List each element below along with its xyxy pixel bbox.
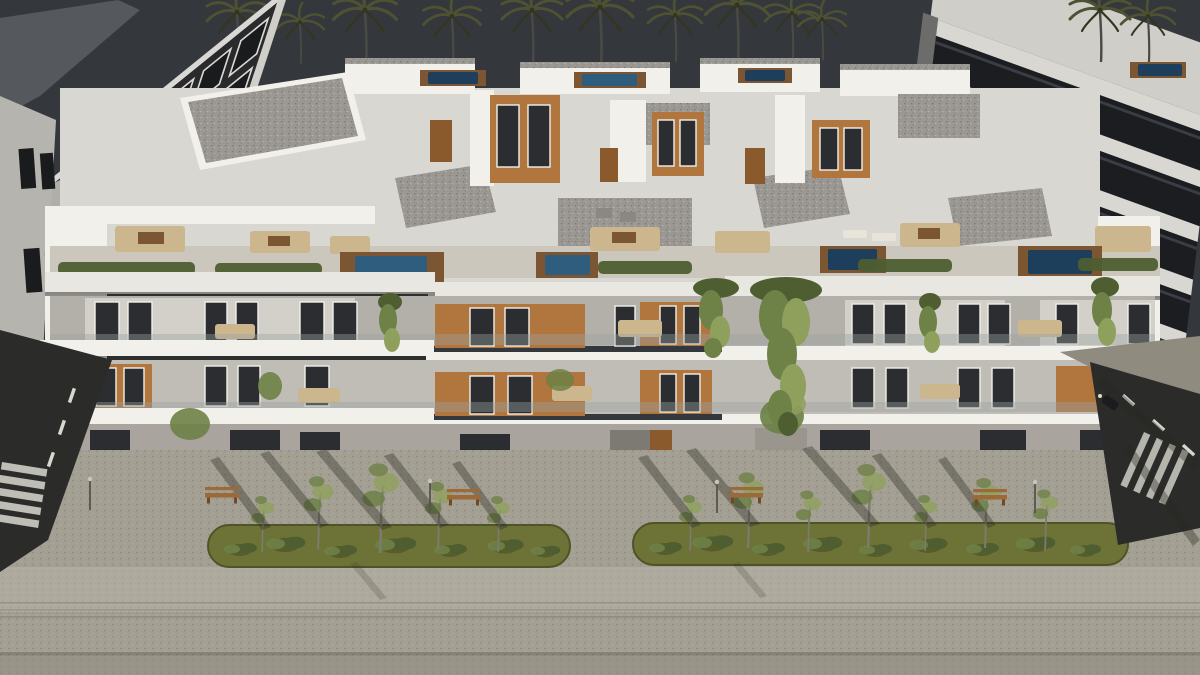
- striped-band: [0, 598, 1200, 620]
- floor-lower: [50, 360, 1155, 416]
- promenade: [0, 446, 1200, 675]
- rooftop-pool: [428, 72, 478, 84]
- rooftop-pool: [745, 70, 785, 81]
- paving-joint-line: [0, 652, 1200, 656]
- main-building: [40, 58, 1186, 463]
- gravel-roof: [898, 94, 980, 138]
- gravel-roof: [948, 188, 1052, 246]
- rooftop-pool: [545, 255, 590, 275]
- rooftop-pool: [1138, 64, 1182, 76]
- rooftop-pool: [582, 74, 637, 86]
- render-canvas: [0, 0, 1200, 675]
- architectural-render: [0, 0, 1200, 675]
